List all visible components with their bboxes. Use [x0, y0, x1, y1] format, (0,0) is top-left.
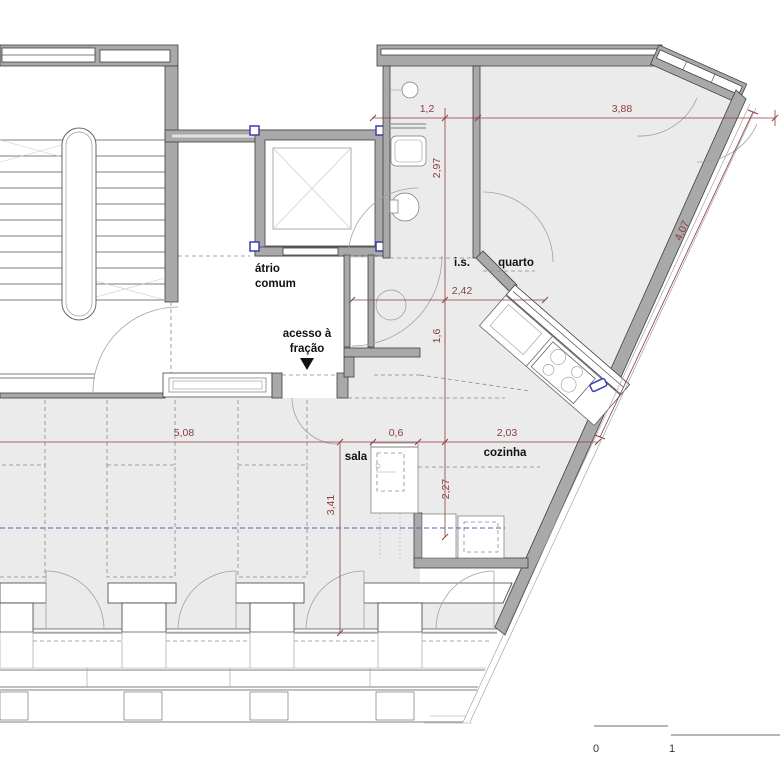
hall-step-wall-h [344, 348, 420, 357]
elevator-door [283, 248, 338, 255]
label-quarto: quarto [498, 257, 534, 269]
label-sala: sala [345, 451, 368, 463]
dim-cozinha-width: 2,03 [497, 427, 518, 439]
pillar [250, 603, 294, 632]
kitchen-balcony-wedge [420, 568, 525, 583]
dim-cabinet-width: 0,6 [389, 427, 404, 439]
extractor-icon [402, 82, 418, 98]
planter [0, 692, 28, 720]
pillar [122, 603, 166, 632]
dim-sala-depth: 3,41 [325, 495, 337, 516]
label-atrio-line2: comum [255, 278, 296, 290]
hall-step-wall-v [344, 357, 354, 377]
facade-wall-segment [364, 583, 512, 603]
counter-unit [422, 514, 456, 558]
label-is: i.s. [454, 257, 470, 269]
label-cozinha: cozinha [484, 447, 527, 459]
dim-is-depth: 2,97 [431, 158, 443, 179]
dim-hall-width: 2,42 [452, 285, 473, 297]
pillar [378, 603, 422, 632]
niche-right-wall [368, 255, 374, 347]
facade-wall-segment [0, 583, 46, 603]
planter [250, 692, 288, 720]
column-marker-icon [250, 242, 259, 251]
scale-zero: 0 [593, 743, 599, 755]
facade-wall-segment [236, 583, 304, 603]
duct-niche [350, 258, 368, 346]
builtin-cabinet [163, 373, 272, 397]
label-acesso-line1: acesso à [283, 328, 332, 340]
stair-handrail [62, 128, 96, 320]
scale-one: 1 [669, 743, 675, 755]
washbasin [391, 136, 426, 166]
stairwell-right-wall [165, 66, 178, 302]
planter [124, 692, 162, 720]
niche-left-wall [344, 255, 350, 347]
wall-stub [272, 373, 282, 398]
planter [376, 692, 414, 720]
column-marker-icon [250, 126, 259, 135]
floor-plan-drawing: 1,2 3,88 2,97 2,42 1,6 4,07 5,08 0,6 2,0… [0, 0, 780, 780]
top-wall-cavity [381, 49, 657, 55]
top-wall-right [377, 45, 662, 66]
dim-is-width: 1,2 [420, 103, 435, 115]
toilet-tank [390, 200, 398, 213]
stairwell-bottom-wall [0, 393, 165, 398]
landing-recess [100, 50, 170, 62]
is-quarto-wall [473, 66, 480, 258]
pillar [0, 603, 33, 632]
facade-wall-segment [108, 583, 176, 603]
label-acesso-line2: fração [290, 343, 325, 355]
label-atrio-line1: átrio [255, 263, 280, 275]
dim-hall-depth: 1,6 [431, 329, 443, 344]
kitchen-west-wall [414, 513, 422, 559]
is-west-wall [383, 66, 390, 258]
island-cabinet [371, 443, 418, 513]
kitchen-south-wall [414, 558, 528, 568]
dim-quarto-width: 3,88 [612, 103, 633, 115]
dim-sala-width: 5,08 [174, 427, 195, 439]
dim-cozinha-depth: 2,27 [440, 479, 452, 500]
floor-plan-page: 1,2 3,88 2,97 2,42 1,6 4,07 5,08 0,6 2,0… [0, 0, 780, 780]
